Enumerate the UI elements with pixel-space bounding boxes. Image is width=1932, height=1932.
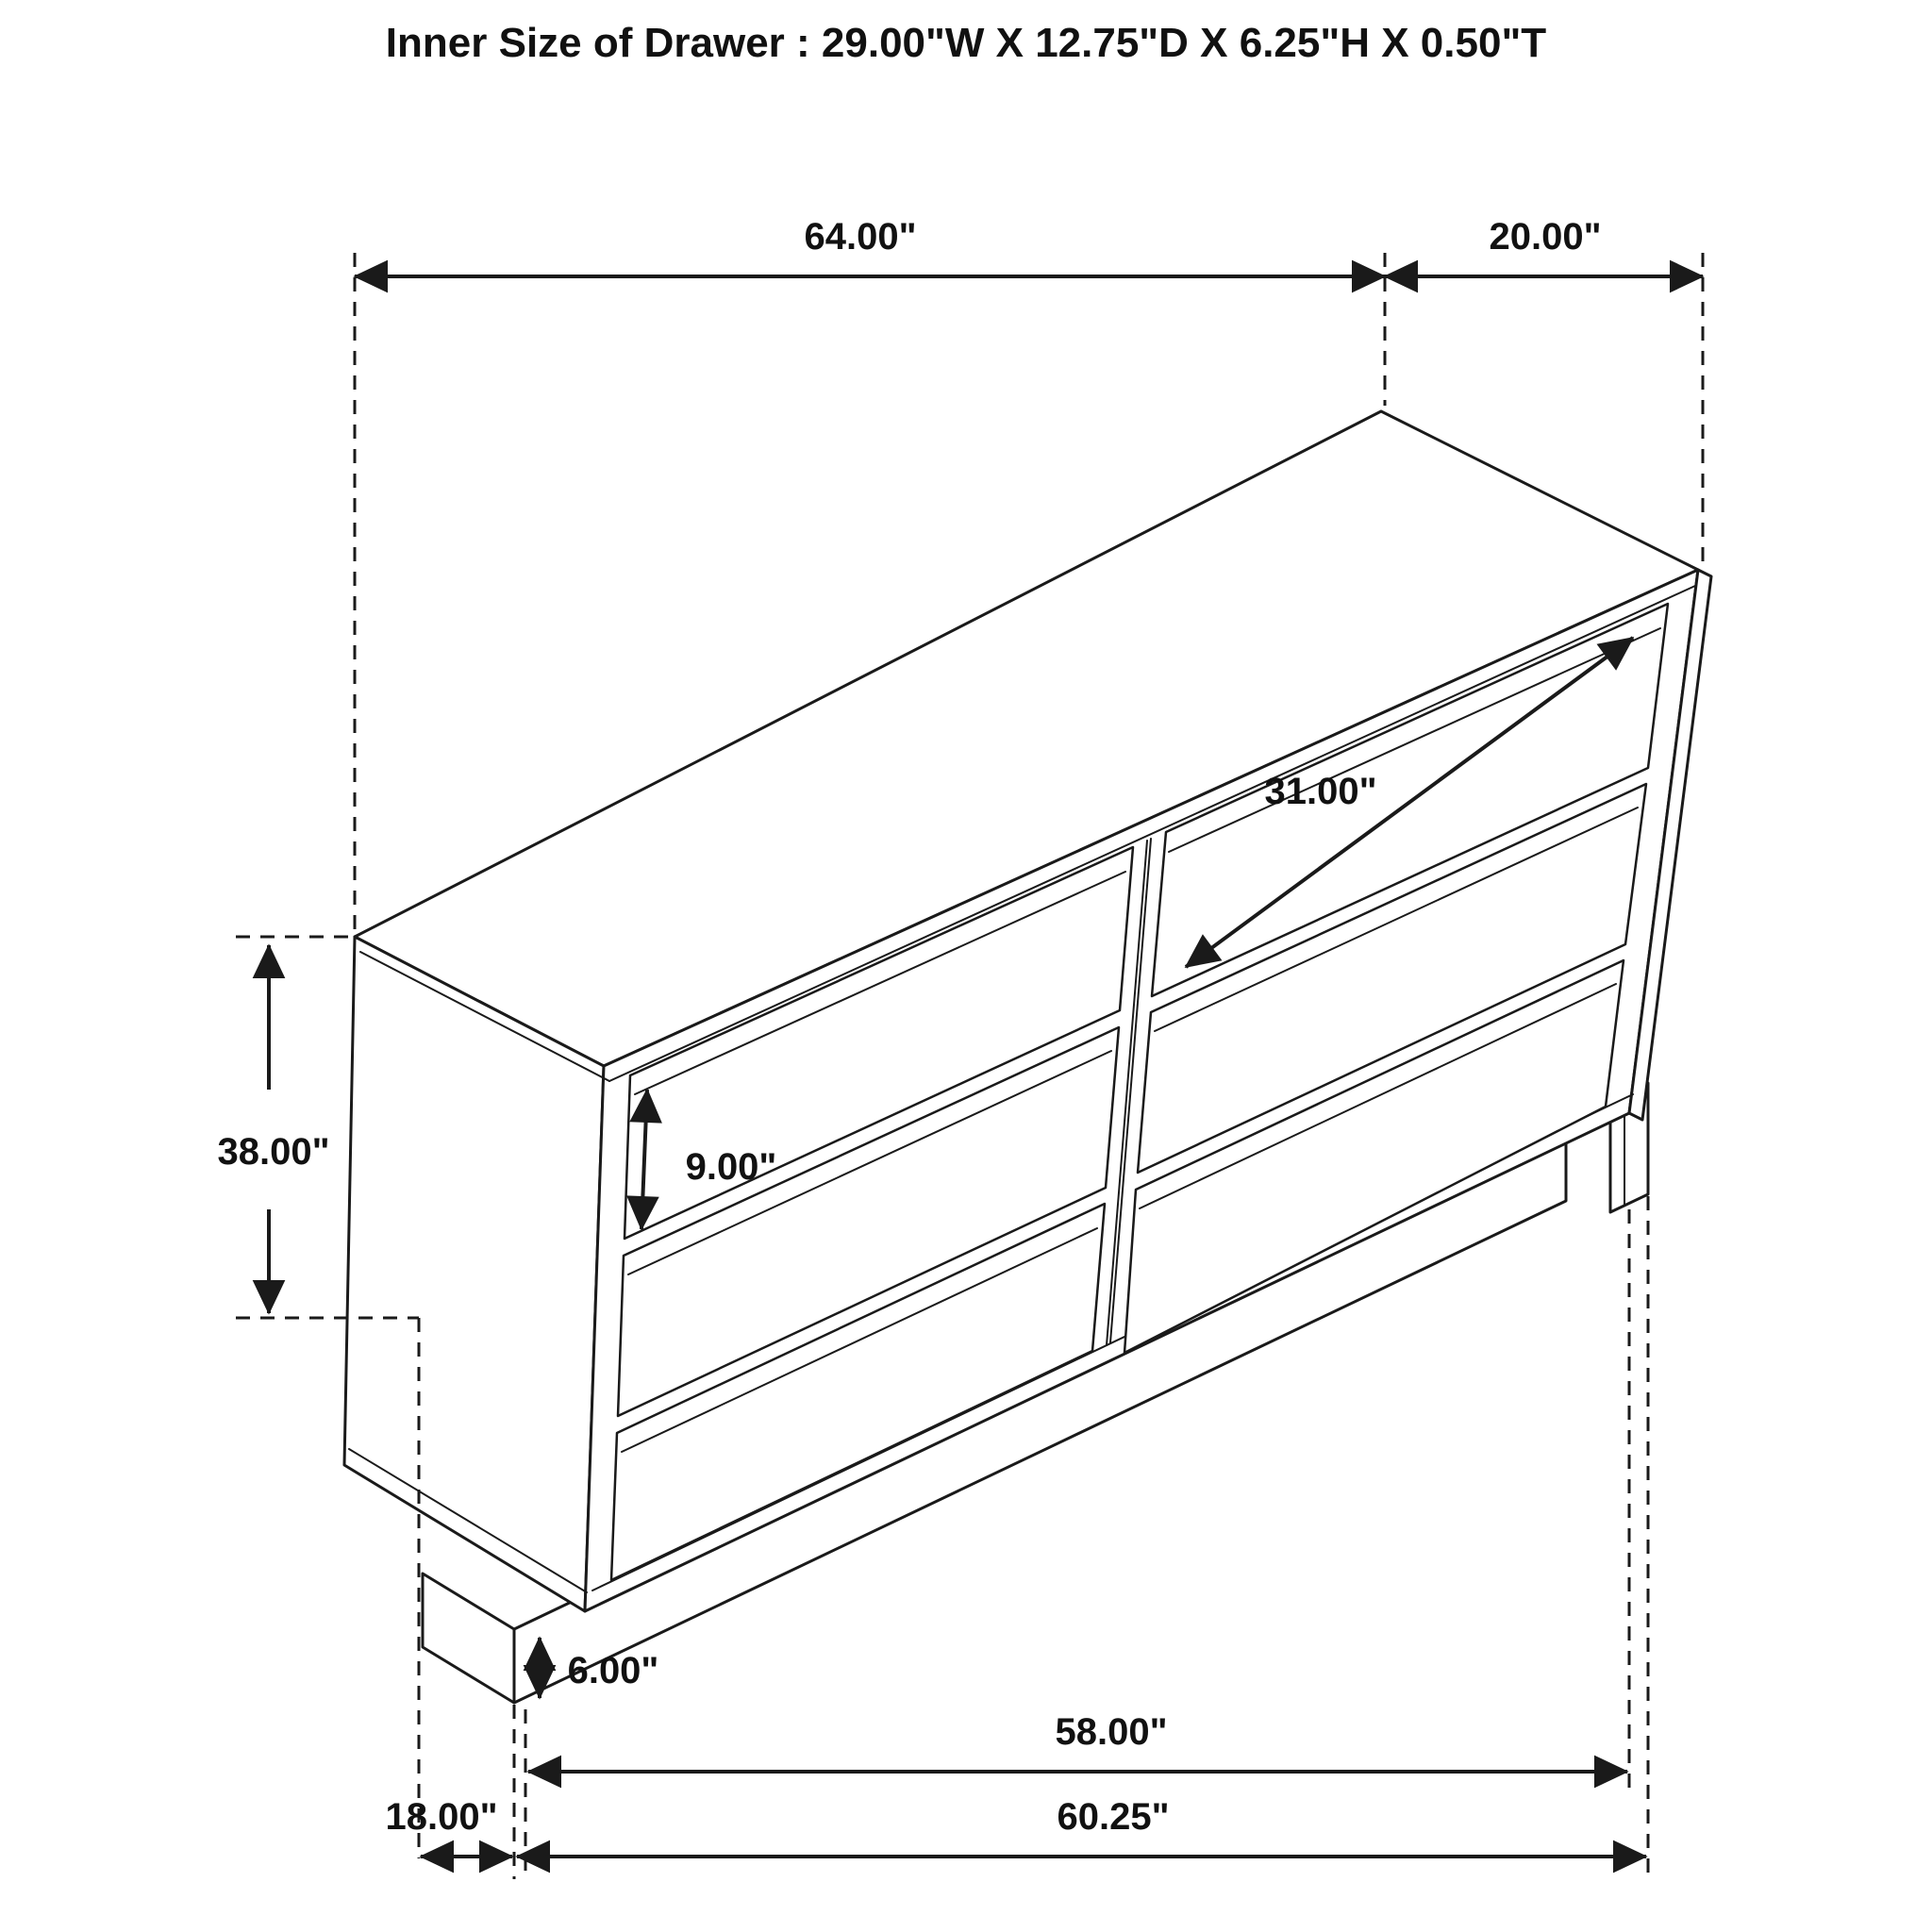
- dresser-dimension-drawing: Inner Size of Drawer : 29.00"W X 12.75"D…: [0, 0, 1932, 1932]
- diagram-title: Inner Size of Drawer : 29.00"W X 12.75"D…: [386, 20, 1547, 66]
- dim-label-drawer-height: 9.00": [686, 1146, 777, 1188]
- dim-label-drawer-width: 31.00": [1264, 771, 1376, 812]
- dim-label-base-height: 6.00": [568, 1650, 659, 1691]
- dimension-diagram-page: Inner Size of Drawer : 29.00"W X 12.75"D…: [0, 0, 1932, 1932]
- dim-label-bottom-outer: 60.25": [1057, 1796, 1169, 1838]
- dim-label-height: 38.00": [217, 1131, 329, 1173]
- dim-label-bottom-left-offset: 18.00": [385, 1796, 497, 1838]
- dim-label-top-width: 64.00": [804, 216, 916, 258]
- base-left-face: [423, 1574, 514, 1703]
- dim-label-top-depth: 20.00": [1489, 216, 1601, 258]
- dim-label-bottom-inner: 58.00": [1055, 1711, 1167, 1753]
